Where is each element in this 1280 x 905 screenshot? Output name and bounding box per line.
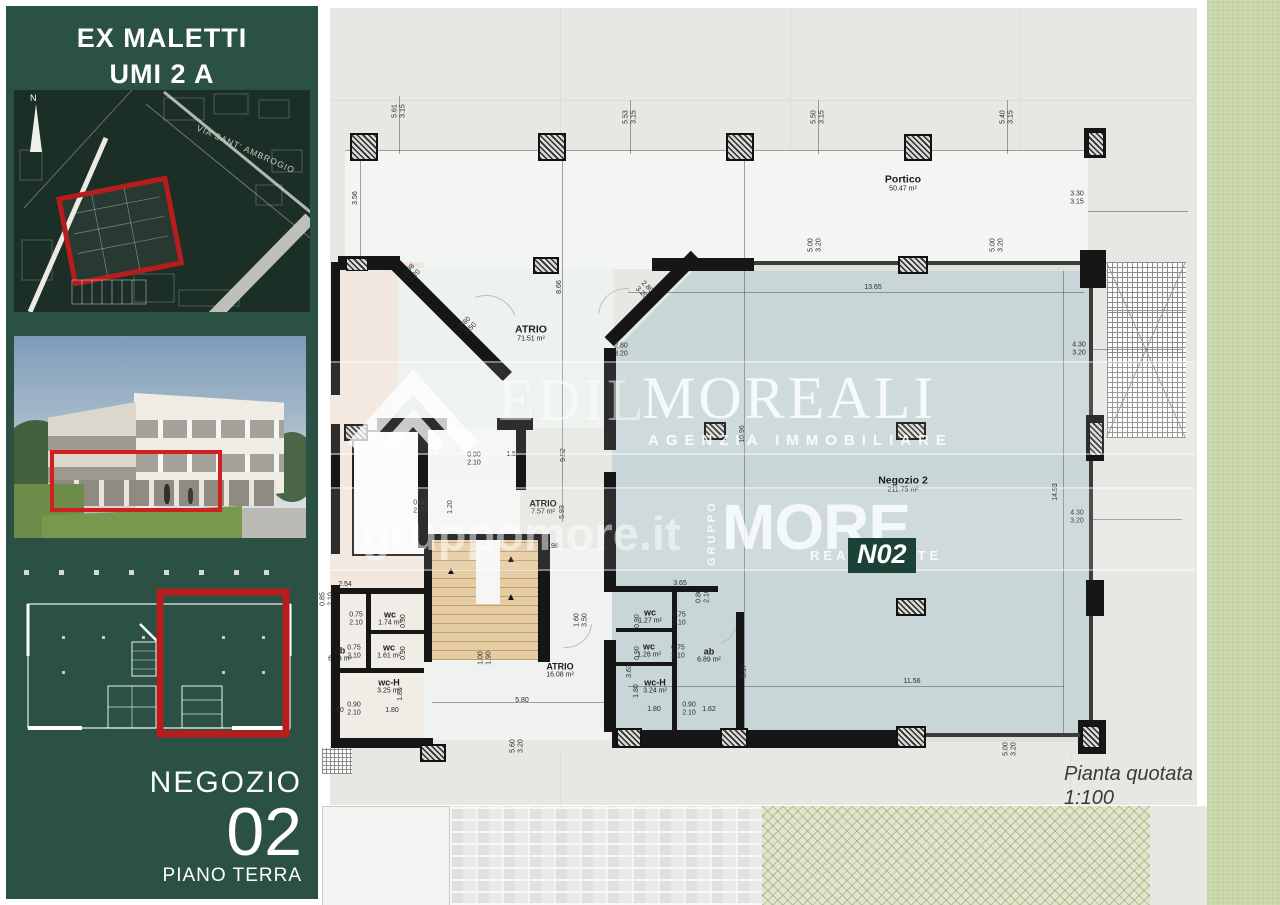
dimension-label: 0.80 2.10 [695,589,710,603]
dimension-label: 2.54 [338,581,352,589]
wall [331,585,340,746]
paving-panel [322,806,450,905]
dimension-label: 13.65 [864,284,882,292]
room-label: ab6.89 m² [697,647,721,664]
north-label: N [30,93,37,103]
dimension-label: 5.00 3.20 [807,238,822,252]
wall [616,628,674,632]
dimension-label: 5.60 3.20 [509,739,524,753]
lawn-strip [1207,0,1280,905]
dimension-label: 0.85 2.10 [319,592,334,606]
dimension-label: 1.80 [633,684,641,698]
wall [652,258,754,271]
dim-line [630,100,631,154]
unit-identifier: NEGOZIO 02 PIANO TERRA [150,766,302,887]
room-area: 6.89 m² [697,657,721,664]
project-title: EX MALETTI UMI 2 A [6,20,318,93]
column [346,258,368,271]
column [896,726,926,748]
column [616,728,642,748]
dim-line [1007,100,1008,154]
dimension-label: 0.75 2.10 [347,644,361,659]
plan-thumbnail [12,566,312,744]
site-map: N VIA SANT' AMBROGIO [14,90,310,312]
dimension-label: 1.80 [647,706,661,714]
sidebar: EX MALETTI UMI 2 A [6,6,318,899]
dimension-label: 3.65 [673,580,687,588]
dimension-label: 11.56 [904,678,921,686]
dimension-label: 0.75 2.10 [671,644,685,659]
unit-badge: N02 [848,538,916,573]
room-name: Portico [885,174,921,186]
column [350,133,378,161]
dimension-label: 1.60 [330,707,344,715]
column [420,744,446,762]
diamond-paving-band [762,806,1150,905]
room-label: wc-H3.24 m² [643,678,667,695]
atrio-16-fill [424,660,520,740]
room-name: wc [378,610,402,620]
dimension-label: 5.40 3.15 [999,110,1014,124]
dimension-label: 1.80 [385,707,399,715]
render-window-band [134,420,284,438]
dimension-label: 0.75 2.10 [672,611,686,626]
room-name: wc [377,643,401,653]
dimension-label: 0.90 [400,646,408,660]
dimension-label: 5.61 3.15 [391,104,406,118]
dimension-label: 5.00 3.20 [1002,742,1017,756]
room-area: 1.61 m² [377,653,401,660]
room-label: Portico50.47 m² [885,174,921,193]
wall [604,640,616,732]
window-glazing [1089,616,1093,722]
watermark-brand-right: MOREALI [642,364,936,433]
dimension-label: 5.50 3.15 [810,110,825,124]
dimension-label: 4.30 3.20 [1072,341,1086,356]
column [898,256,928,274]
column [726,133,754,161]
paving-joint [330,100,1195,101]
dimension-label: 0.75 2.10 [349,611,363,626]
dim-line [1090,349,1182,350]
dim-line [562,152,563,522]
plan-caption: Pianta quotata 1:100 [1064,762,1193,810]
parcel-highlight [59,178,181,283]
project-title-line1: EX MALETTI [6,20,318,56]
dimension-label: 0.90 [400,614,408,628]
caption-scale: 1:100 [1064,786,1193,810]
corner-column [1080,250,1106,288]
stair-direction-arrow: ▲ [506,592,516,603]
room-label: ATRIO16.08 m² [546,662,574,679]
room-name: Negozio 2 [878,475,928,487]
dim-line [1088,211,1188,212]
shopfront-sill [914,737,1080,742]
building-render-photo [14,336,306,538]
paving-joint [790,8,791,148]
dimension-label: 3.63 [626,664,634,678]
wall [331,738,433,748]
watermark-brand-sub: AGENZIA IMMOBILIARE [648,432,953,449]
dim-line [818,100,819,154]
room-area: 50.47 m² [885,186,921,193]
facade-post [1086,580,1104,616]
dimension-label: 2.80 3.20 [614,342,628,357]
dim-line [628,292,1084,293]
room-name: ab [697,647,721,657]
shopfront-glazing [914,733,1080,737]
watermark-band-line [330,487,1195,489]
dim-line [360,158,361,256]
room-area: 1.74 m² [378,620,402,627]
dimension-label: 0.90 2.10 [682,701,696,716]
room-area: 16.08 m² [546,672,574,679]
dimension-label: 5.80 [515,697,529,705]
wall [616,662,674,666]
brick-paving-band [450,806,762,905]
wall [337,668,424,673]
watermark-gruppo: GRUPPO [706,500,718,566]
dimension-label: 0.90 [634,646,642,660]
dimension-label: 1.60 3.50 [573,613,588,627]
render-highlight-box [50,450,222,512]
room-label: wc1.74 m² [378,610,402,627]
dimension-label: 1.00 1.90 [477,651,492,665]
dimension-label: 3.30 3.15 [1070,190,1084,205]
wall [612,730,914,748]
chevron-logo-icon [348,356,478,452]
thumbnail-highlight-box [160,592,286,734]
floor-label: PIANO TERRA [150,865,302,887]
grate-area-small [322,748,352,774]
watermark-band-line [330,453,1195,455]
dimension-label: 3.56 [352,191,360,205]
grate-divider [1107,310,1186,311]
corner-column-hatch [1088,132,1104,156]
column [904,134,932,161]
caption-title: Pianta quotata [1064,762,1193,786]
dim-line [628,686,1064,687]
paving-joint [560,8,561,148]
column [896,598,926,616]
paving-band [1150,806,1207,905]
column [720,728,748,748]
unit-number: 02 [150,800,302,865]
dimension-label: 5.53 3.15 [622,110,637,124]
watermark-brand-left: EDIL [498,366,647,435]
portico-floor [345,150,1088,269]
column [533,257,559,274]
dimension-label: 8.66 [556,280,564,294]
column [538,133,566,161]
dimension-label: 0.90 2.10 [347,701,361,716]
floor-plan-sheet: ▲ ▲ ▲ Portico50.47 m²ATRIO71.51 m²ATRIO7… [0,0,1280,905]
paving-joint [560,750,561,805]
room-label: wc1.61 m² [377,643,401,660]
room-label: ATRIO71.51 m² [515,324,547,343]
room-name: ATRIO [546,662,574,672]
room-area: 3.24 m² [643,688,667,695]
wall [337,588,424,594]
dimension-label: 3.97 [741,664,749,678]
paving-joint [1020,8,1021,148]
project-title-line2: UMI 2 A [6,56,318,92]
dimension-label: 5.00 3.20 [989,238,1004,252]
render-window-band [48,436,136,452]
wall [366,630,424,634]
room-area: 71.51 m² [515,336,547,343]
dimension-label: 1.62 [702,706,716,714]
watermark-website: gruppomore.it [362,506,681,561]
dimension-label: 1.81 [397,687,405,701]
watermark-band-line [330,569,1195,571]
dimension-label: 0.90 [634,614,642,628]
room-name: ATRIO [515,324,547,336]
room-name: wc-H [643,678,667,688]
corner-column-hatch [1082,726,1100,748]
